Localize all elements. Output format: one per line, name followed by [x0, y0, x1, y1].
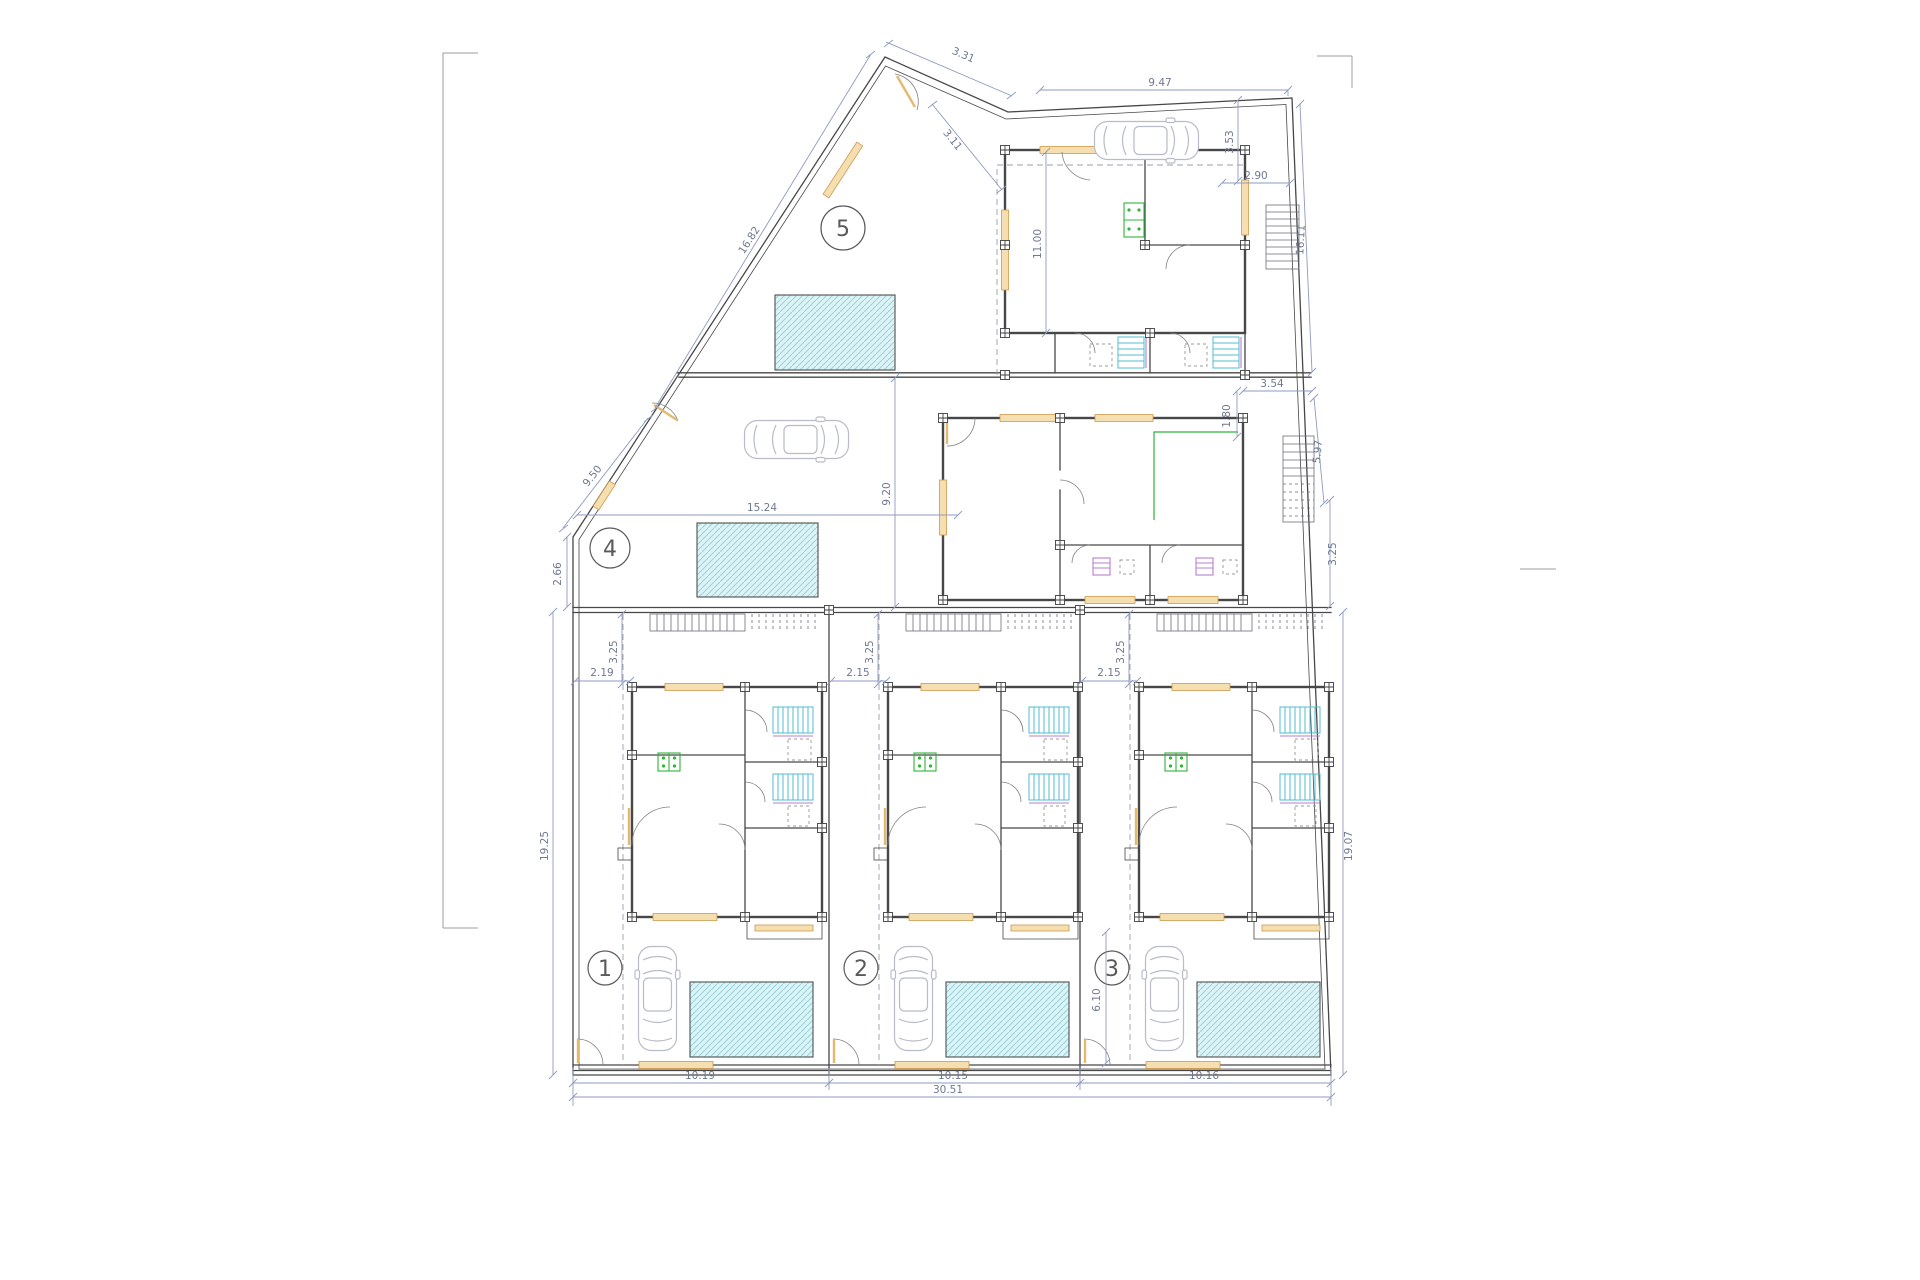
site-walls [573, 371, 1331, 1076]
dim-label: 3.31 [950, 45, 976, 65]
dim-label: 19.07 [1343, 831, 1355, 861]
dim-label: 9.50 [581, 463, 605, 489]
dim-label: 15.24 [747, 502, 777, 514]
dim-label: 3.54 [1260, 378, 1284, 390]
plan-sheet: 1 2 3 4 5 10.19 10.15 10.16 30.51 9.47 3… [0, 0, 1920, 1280]
dim-label: 3.25 [1115, 640, 1127, 663]
site-plan-drawing: 1 2 3 4 5 10.19 10.15 10.16 30.51 9.47 3… [0, 0, 1920, 1280]
dim-label: 30.51 [933, 1084, 963, 1096]
bathroom-fixtures [1090, 337, 1241, 368]
row-house-unit1 [577, 614, 827, 1069]
dim-label: 3.25 [1327, 542, 1339, 565]
row-house-unit2 [833, 614, 1083, 1069]
dim-label: 6.10 [1091, 988, 1103, 1011]
dim-label: 3.53 [1224, 130, 1236, 153]
dim-label: 2.15 [1097, 667, 1120, 679]
dim-label: 19.25 [539, 831, 551, 861]
unit-number: 4 [603, 537, 617, 562]
unit-number: 5 [836, 217, 850, 242]
kitchen-unit-icon [1124, 203, 1144, 237]
unit-number: 3 [1105, 957, 1119, 982]
dim-label: 2.19 [590, 667, 613, 679]
dim-label: 3.11 [940, 127, 964, 153]
swimming-pool [697, 523, 818, 597]
dim-label: 2.90 [1244, 170, 1267, 182]
plot-boundary [573, 57, 1331, 1075]
dim-label: 5.97 [1311, 440, 1325, 464]
swimming-pool [775, 295, 895, 370]
dim-label: 9.20 [881, 482, 893, 505]
unit-number: 2 [854, 957, 868, 982]
dim-label: 1.80 [1221, 404, 1233, 427]
unit4-house [697, 414, 1248, 605]
dim-label: 11.00 [1032, 229, 1044, 259]
dim-label: 3.25 [608, 640, 620, 663]
stairs-icon [1266, 205, 1299, 269]
dim-label: 2.66 [552, 562, 564, 586]
dim-label: 10.16 [1189, 1070, 1219, 1082]
dim-label: 10.15 [938, 1070, 968, 1082]
dim-label: 10.19 [685, 1070, 715, 1082]
stairs-icon [1283, 436, 1314, 522]
dim-label: 3.25 [864, 640, 876, 663]
dim-label: 9.47 [1148, 77, 1171, 89]
dim-label: 2.15 [846, 667, 869, 679]
unit-number: 1 [598, 957, 612, 982]
dim-label: 16.11 [1294, 225, 1308, 256]
utility-fixtures [1093, 558, 1237, 575]
unit5-house [775, 118, 1250, 375]
row-house-unit3 [1084, 614, 1334, 1069]
